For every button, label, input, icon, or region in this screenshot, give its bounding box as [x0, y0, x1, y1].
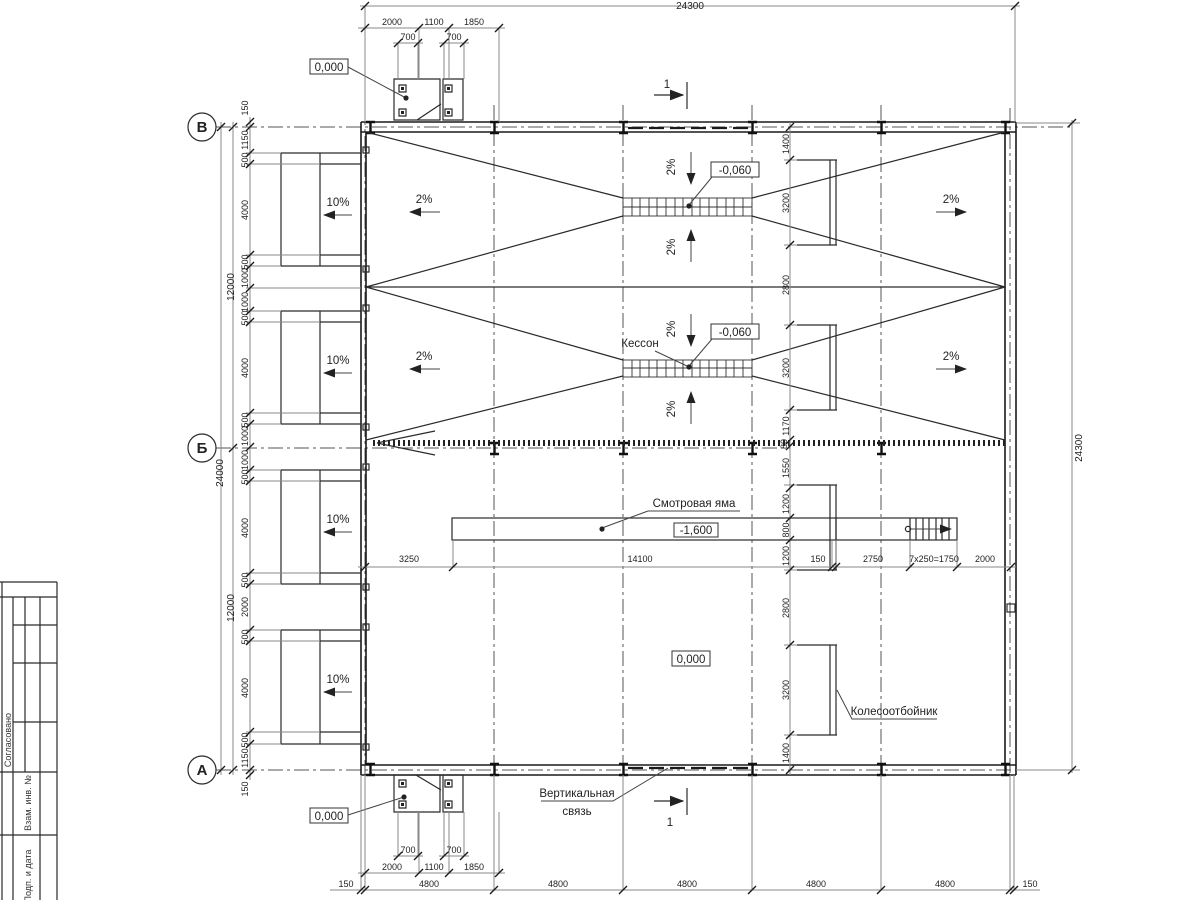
ramp-slope-labels: 10% 10% 10% 10%	[324, 197, 352, 692]
dim-label: 1100	[424, 862, 443, 872]
dim-label: 2800	[781, 275, 791, 295]
dim-label: 4800	[419, 879, 439, 889]
titleblock-agreed-label: Согласовано	[3, 713, 13, 767]
dim-label: 1000	[240, 268, 250, 288]
floor-slope-label: 2%	[943, 194, 960, 206]
titleblock-vzam-label: Взам. инв. №	[23, 775, 33, 831]
dim-label: 2000	[975, 554, 995, 564]
dim-label: 150	[810, 554, 825, 564]
dim-label: 150	[240, 100, 250, 115]
ramp-slope-label: 10%	[326, 674, 349, 686]
axis-label-v: В	[197, 119, 208, 136]
ramp-slope-label: 10%	[326, 355, 349, 367]
dim-label: 1100	[424, 17, 443, 27]
dim-label: 500	[240, 152, 250, 167]
dim-label: 500	[240, 629, 250, 644]
dim-label: 1850	[464, 862, 484, 872]
pit-note: Смотровая яма	[653, 498, 736, 510]
elevation-pit: -1,600	[680, 525, 713, 537]
dim-label: 1200	[781, 546, 791, 566]
dim-label: 1850	[464, 17, 484, 27]
slope-diagonals	[366, 132, 1005, 455]
dim-label: 24300	[676, 1, 704, 12]
dim-label: 3250	[399, 554, 419, 564]
dim-label: 150	[240, 781, 250, 796]
floor-slope-label: 2%	[666, 239, 678, 256]
dim-label: 14100	[627, 554, 652, 564]
dim-label: 1000	[240, 450, 250, 470]
dim-label: 4000	[240, 678, 250, 698]
dim-label: 4800	[677, 879, 697, 889]
dim-label: 24300	[1074, 434, 1085, 462]
bracing-note-line1: Вертикальная	[539, 788, 614, 800]
section-mark-label: 1	[664, 79, 670, 91]
dim-label: 1170	[781, 416, 791, 435]
dim-label: 4800	[935, 879, 955, 889]
ramp-slope-label: 10%	[326, 514, 349, 526]
titleblock-podp-label: Подп. и дата	[23, 849, 33, 900]
elevation-caisson-2: -0,060	[719, 327, 752, 339]
dim-label: 2000	[240, 597, 250, 617]
elevation-caisson-1: -0,060	[719, 165, 752, 177]
dim-label: 1150	[240, 130, 250, 149]
dim-label: 2000	[382, 862, 402, 872]
dim-label: 3200	[781, 680, 791, 700]
axis-label-b: Б	[197, 440, 208, 457]
drawing-sheet: Согласовано Взам. инв. № Подп. и дата В …	[0, 0, 1200, 900]
dim-label: 2000	[382, 17, 402, 27]
ramp-slope-label: 10%	[326, 197, 349, 209]
floor-slope-label: 2%	[416, 194, 433, 206]
dim-label: 3200	[781, 193, 791, 213]
dim-label: 800	[781, 522, 791, 537]
wheel-guards	[797, 160, 837, 735]
dim-label: 24000	[215, 459, 226, 487]
dim-label: 1150	[240, 748, 250, 767]
floor-slope-label: 2%	[666, 401, 678, 418]
dim-label: 80	[779, 439, 789, 449]
dim-label: 500	[240, 732, 250, 747]
dim-label: 700	[446, 845, 461, 855]
dim-label: 700	[400, 32, 415, 42]
section-marks: 1 1	[654, 79, 687, 829]
dim-label: 1000	[240, 292, 250, 312]
dim-label: 1000	[240, 426, 250, 446]
dim-label: 4000	[240, 358, 250, 378]
dim-label: 1550	[781, 458, 791, 478]
floor-slope-label: 2%	[416, 351, 433, 363]
dim-label: 3200	[781, 358, 791, 378]
caisson-note: Кессон	[621, 338, 658, 350]
dim-label: 1200	[781, 494, 791, 514]
section-mark-label: 1	[667, 817, 673, 829]
wall-pilaster	[1007, 604, 1015, 612]
floor-slope-label: 2%	[943, 351, 960, 363]
dim-label: 12000	[226, 273, 237, 301]
dim-label: 500	[240, 469, 250, 484]
floor-slope-label: 2%	[666, 321, 678, 338]
elevation-zero-top: 0,000	[315, 62, 344, 74]
dim-label: 500	[240, 412, 250, 427]
floor-plan-drawing: Согласовано Взам. инв. № Подп. и дата В …	[0, 0, 1200, 900]
dim-label: 500	[240, 310, 250, 325]
dim-label: 4000	[240, 200, 250, 220]
dim-label: 1400	[781, 743, 791, 763]
dim-label: 700	[446, 32, 461, 42]
axis-markers: В Б А	[188, 113, 216, 784]
floor-slope-label: 2%	[666, 159, 678, 176]
dim-label: 150	[338, 879, 353, 889]
floor-slope-labels: 2% 2% 2% 2% 2% 2% 2% 2%	[410, 152, 966, 424]
dim-label: 4800	[548, 879, 568, 889]
title-block: Согласовано Взам. инв. № Подп. и дата	[0, 582, 57, 900]
dim-label: 4000	[240, 518, 250, 538]
dim-label: 2800	[781, 598, 791, 618]
dim-label: 700	[400, 845, 415, 855]
wheel-guard-note: Колесоотбойник	[851, 706, 939, 718]
axis-label-a: А	[197, 762, 208, 779]
dim-label: 500	[240, 572, 250, 587]
dim-label: 7x250=1750	[909, 554, 959, 564]
dim-label: 500	[240, 254, 250, 269]
dim-label: 1400	[781, 134, 791, 154]
elevation-zero-bottom: 0,000	[315, 811, 344, 823]
elevation-zero-floor: 0,000	[677, 654, 706, 666]
dim-label: 150	[1022, 879, 1037, 889]
dim-label: 4800	[806, 879, 826, 889]
bracing-note-line2: связь	[562, 806, 591, 818]
dim-label: 2750	[863, 554, 883, 564]
dim-label: 12000	[226, 594, 237, 622]
